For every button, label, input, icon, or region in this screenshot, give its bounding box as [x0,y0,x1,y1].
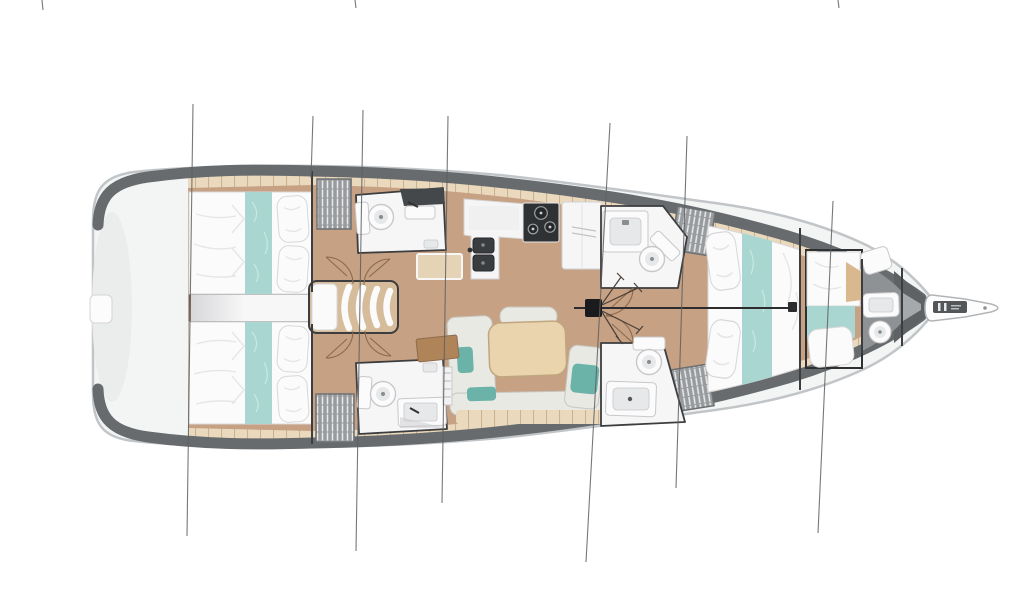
aft-cabin-starboard [189,322,312,424]
wardrobe-aft-starboard [316,394,354,442]
dining-table [488,321,567,378]
stair-tread [387,291,391,323]
wardrobe-aft-port [317,179,351,229]
faucet-icon [468,248,473,253]
bed-runner [245,192,272,294]
drain [481,243,485,247]
drain [481,261,485,265]
settee-base [456,410,604,424]
faucet-icon [622,220,629,225]
vanity-basin [404,403,437,421]
yacht-floor-plan-page [0,0,1024,600]
bed-runner [245,322,272,424]
stay-fitting [788,302,797,312]
aft-corridor [190,294,312,322]
aft-cabin-port [189,192,312,294]
pillow-icon [807,326,855,368]
stairs-landing [312,284,337,330]
teal-cushion [467,386,496,401]
stern-swim-platform [90,295,112,323]
sink-basin [869,298,893,312]
companionway-stairs [309,281,398,333]
aft-head-port [355,188,446,253]
transom-step [90,295,112,323]
vanity-counter [400,188,445,206]
faucet-icon [628,397,632,401]
floor-inlay [417,254,462,279]
roller-pin [983,306,987,310]
bow-cabin [806,250,862,368]
engine-box-corridor [190,294,312,322]
counter-top [469,206,519,230]
sideboard [416,335,459,362]
aft-head-starboard [356,359,447,434]
yacht-floor-plan [0,0,1024,600]
vent [424,240,438,248]
vanity-basin [405,206,435,219]
teal-cushion [457,346,474,373]
vent [423,363,437,372]
bowsprit [925,295,998,321]
